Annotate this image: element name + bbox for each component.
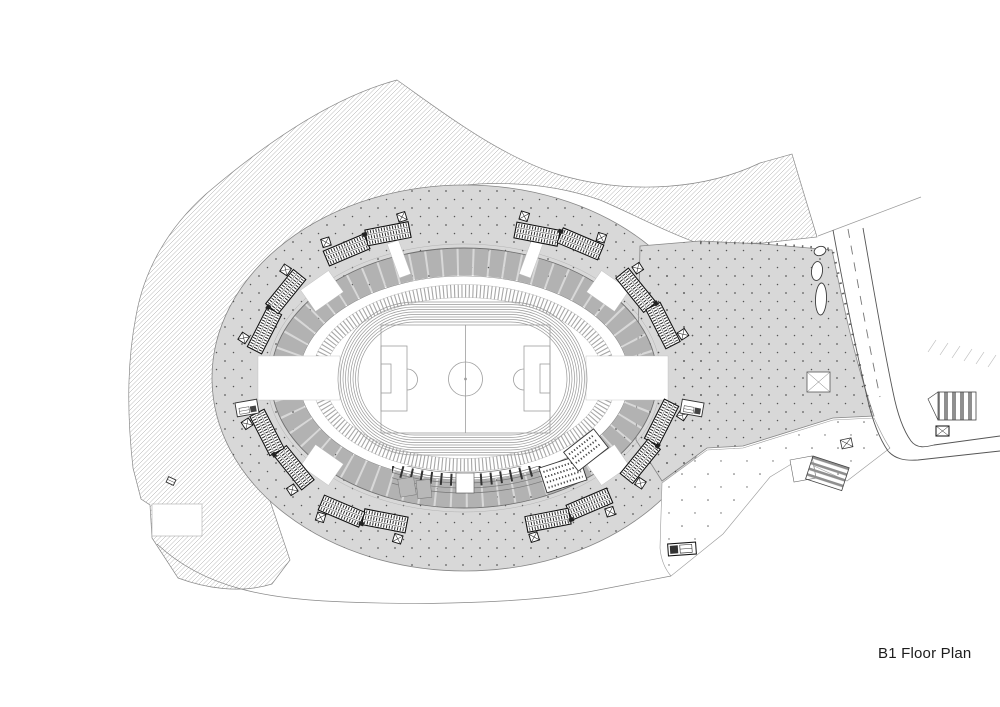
center-spot: [465, 378, 467, 380]
east-corridor: [586, 356, 668, 400]
plan-title: B1 Floor Plan: [878, 645, 971, 662]
floor-plan-drawing: [0, 0, 1000, 707]
east-stair-crossing: [928, 392, 976, 420]
x-box-east: [936, 426, 949, 436]
slope-ticks: [928, 340, 996, 367]
south-tunnel: [456, 473, 474, 493]
x-box-road: [840, 438, 853, 449]
ramp-marker-plaza: [807, 372, 830, 392]
stadium-bowl: [258, 240, 668, 512]
service-vehicle: [668, 542, 697, 556]
landscape-notch: [152, 504, 202, 536]
floor-plan-canvas: B1 Floor Plan: [0, 0, 1000, 707]
road-right-curb: [863, 228, 1000, 447]
west-corridor: [258, 356, 340, 400]
